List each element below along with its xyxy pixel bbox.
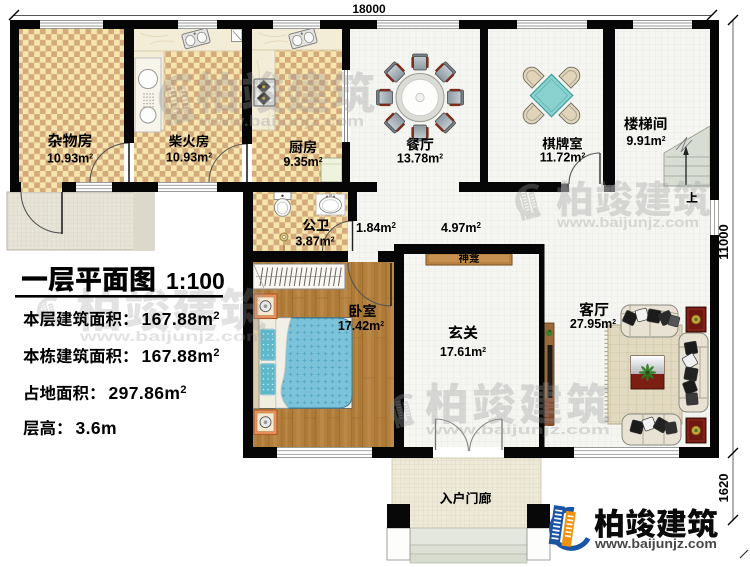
svg-text:9.91m2: 9.91m2 (626, 134, 665, 148)
svg-text:167.88m2: 167.88m2 (142, 346, 220, 366)
svg-text:1620: 1620 (716, 474, 731, 503)
svg-text:9.35m2: 9.35m2 (283, 155, 322, 169)
svg-text:18000: 18000 (352, 2, 386, 16)
svg-text:10.93m2: 10.93m2 (166, 151, 212, 165)
svg-text:297.86m2: 297.86m2 (109, 383, 187, 403)
svg-text:www.baijunjz.com: www.baijunjz.com (424, 422, 610, 437)
svg-text:www.baijunjz.com: www.baijunjz.com (78, 329, 265, 344)
svg-text:11.72m2: 11.72m2 (540, 151, 586, 165)
svg-text:1:100: 1:100 (166, 268, 225, 294)
svg-text:27.95m2: 27.95m2 (570, 317, 616, 331)
svg-text:167.88m2: 167.88m2 (142, 309, 220, 329)
svg-text:17.42m2: 17.42m2 (338, 319, 384, 333)
svg-text:3.87m2: 3.87m2 (295, 235, 334, 249)
svg-text:17.61m2: 17.61m2 (440, 345, 486, 359)
svg-text:www.baijunjz.com: www.baijunjz.com (556, 215, 699, 230)
svg-text:1.84m2: 1.84m2 (356, 221, 396, 235)
svg-text:4.97m2: 4.97m2 (441, 221, 481, 235)
svg-text:3.6m: 3.6m (76, 418, 118, 438)
svg-text:10.93m2: 10.93m2 (47, 152, 93, 166)
svg-text:www.baijunjz.com: www.baijunjz.com (594, 536, 717, 551)
svg-text:13.78m2: 13.78m2 (397, 152, 443, 166)
svg-text:11000: 11000 (716, 224, 731, 259)
svg-text:www.baijunjz.com: www.baijunjz.com (199, 113, 364, 130)
